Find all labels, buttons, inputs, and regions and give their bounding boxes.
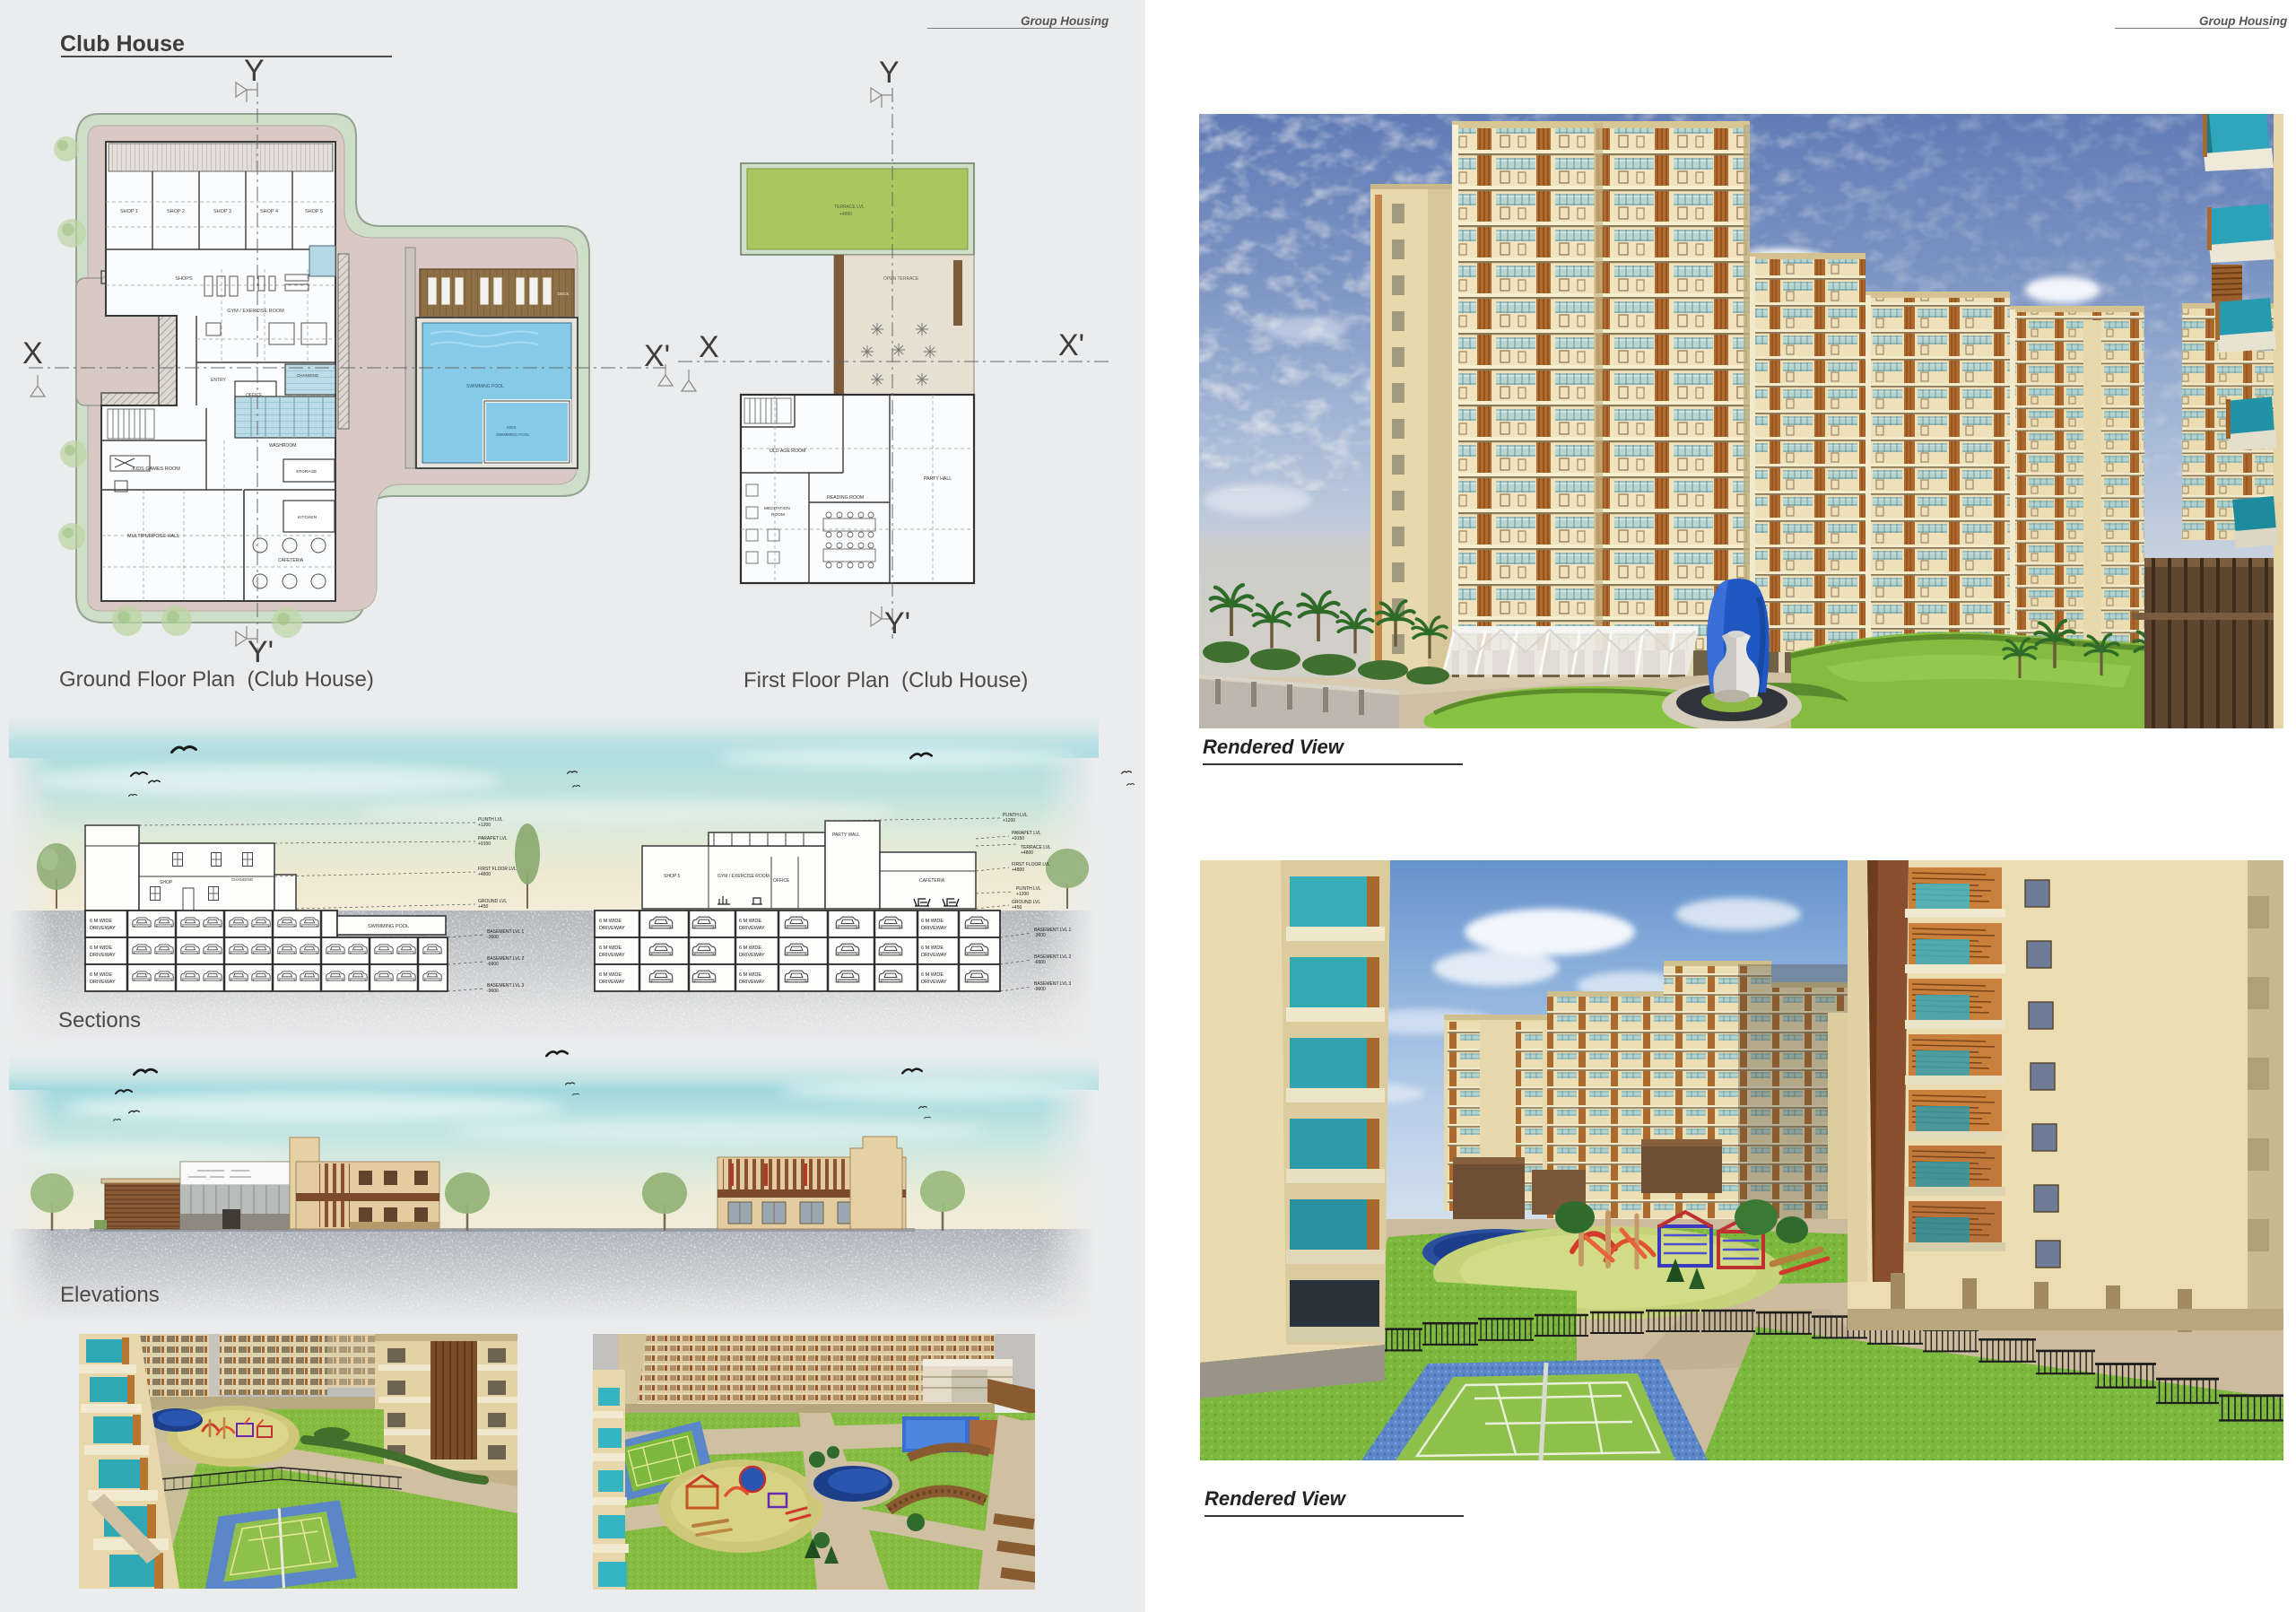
svg-text:PARTY WALL: PARTY WALL [832, 832, 860, 838]
svg-text:+4800: +4800 [1012, 867, 1024, 873]
svg-text:SWIMMING POOL: SWIMMING POOL [466, 384, 504, 389]
svg-text:-6600: -6600 [487, 962, 499, 967]
svg-text:DRIVEWAY: DRIVEWAY [739, 953, 765, 958]
svg-text:6 M WIDE: 6 M WIDE [921, 919, 944, 924]
svg-text:6 M WIDE: 6 M WIDE [599, 945, 622, 951]
svg-text:+1200: +1200 [478, 823, 491, 828]
svg-text:DRIVEWAY: DRIVEWAY [921, 926, 947, 931]
svg-text:SHOP 1: SHOP 1 [120, 209, 138, 214]
svg-text:STORAGE: STORAGE [296, 469, 317, 475]
svg-text:-9600: -9600 [487, 989, 499, 994]
svg-text:SHOP 3: SHOP 3 [213, 209, 231, 214]
svg-text:+4800: +4800 [478, 872, 491, 877]
svg-text:KITCHEN: KITCHEN [298, 515, 317, 520]
svg-text:GYM / EXERCISE ROOM: GYM / EXERCISE ROOM [717, 874, 770, 879]
svg-text:MEDITATION: MEDITATION [764, 506, 790, 511]
svg-text:PARTY HALL: PARTY HALL [924, 476, 952, 482]
svg-text:SHOPS: SHOPS [175, 276, 193, 282]
svg-text:OFFICE: OFFICE [773, 878, 790, 884]
svg-text:DRIVEWAY: DRIVEWAY [739, 980, 765, 985]
svg-text:6 M WIDE: 6 M WIDE [921, 945, 944, 951]
svg-text:MULTIPURPOSE HALL: MULTIPURPOSE HALL [127, 534, 179, 539]
svg-text:6 M WIDE: 6 M WIDE [599, 919, 622, 924]
svg-text:-3600: -3600 [1034, 933, 1046, 938]
svg-text:+4800: +4800 [1021, 850, 1033, 856]
svg-text:SHOP 5: SHOP 5 [664, 874, 680, 879]
svg-text:X: X [22, 336, 43, 370]
svg-text:CAFETERIA: CAFETERIA [919, 878, 945, 884]
svg-text:KIDS GAMES ROOM: KIDS GAMES ROOM [133, 466, 180, 472]
svg-text:+1200: +1200 [1003, 818, 1015, 823]
svg-text:SHOP 4: SHOP 4 [260, 209, 278, 214]
svg-text:SHOP 2: SHOP 2 [167, 209, 185, 214]
svg-text:6 M WIDE: 6 M WIDE [739, 945, 761, 951]
svg-text:DRIVEWAY: DRIVEWAY [90, 980, 116, 985]
svg-text:ENTRY: ENTRY [211, 378, 227, 383]
svg-text:6 M WIDE: 6 M WIDE [90, 972, 112, 978]
svg-text:DRIVEWAY: DRIVEWAY [90, 953, 116, 958]
svg-text:Y': Y' [884, 606, 910, 640]
svg-text:DRIVEWAY: DRIVEWAY [921, 953, 947, 958]
svg-text:-9600: -9600 [1034, 987, 1046, 992]
svg-text:DRIVEWAY: DRIVEWAY [599, 926, 625, 931]
svg-text:6 M WIDE: 6 M WIDE [921, 972, 944, 978]
svg-text:DRIVEWAY: DRIVEWAY [599, 980, 625, 985]
svg-text:Y': Y' [248, 635, 274, 669]
svg-text:CAFETERIA: CAFETERIA [278, 558, 304, 563]
svg-text:+450: +450 [478, 904, 488, 910]
svg-text:+4800: +4800 [839, 212, 852, 217]
svg-text:6 M WIDE: 6 M WIDE [739, 919, 761, 924]
svg-text:6 M WIDE: 6 M WIDE [599, 972, 622, 978]
svg-text:+9150: +9150 [1012, 836, 1024, 841]
svg-text:-6600: -6600 [1034, 960, 1046, 965]
svg-text:TERRACE LVL: TERRACE LVL [834, 205, 865, 210]
svg-text:SWIMMING POOL: SWIMMING POOL [368, 924, 409, 929]
svg-text:CHANGING: CHANGING [231, 877, 254, 882]
svg-text:SHOP 5: SHOP 5 [305, 209, 323, 214]
svg-text:+9150: +9150 [478, 841, 491, 847]
svg-text:OPEN TERRACE: OPEN TERRACE [883, 276, 919, 282]
svg-text:WASHROOM: WASHROOM [269, 443, 296, 449]
svg-text:X: X [699, 330, 719, 364]
svg-text:Y: Y [879, 56, 900, 90]
svg-text:6 M WIDE: 6 M WIDE [90, 945, 112, 951]
svg-text:6 M WIDE: 6 M WIDE [90, 919, 112, 924]
svg-text:DRIVEWAY: DRIVEWAY [739, 926, 765, 931]
svg-text:+450: +450 [1012, 905, 1022, 911]
svg-text:SWIMMING POOL: SWIMMING POOL [496, 432, 530, 437]
svg-text:-3600: -3600 [487, 935, 499, 940]
svg-text:+1200: +1200 [1016, 892, 1029, 897]
svg-text:KIDS: KIDS [507, 425, 517, 430]
svg-text:DRIVEWAY: DRIVEWAY [599, 953, 625, 958]
svg-text:CHANGING: CHANGING [297, 373, 319, 378]
svg-text:OLD AGE ROOM: OLD AGE ROOM [770, 449, 805, 454]
svg-text:DRIVEWAY: DRIVEWAY [90, 926, 116, 931]
svg-text:DRIVEWAY: DRIVEWAY [921, 980, 947, 985]
svg-text:6 M WIDE: 6 M WIDE [739, 972, 761, 978]
svg-text:GYM / EXERCISE ROOM: GYM / EXERCISE ROOM [227, 309, 284, 314]
svg-text:READING ROOM: READING ROOM [827, 495, 864, 501]
svg-text:X': X' [1058, 328, 1084, 362]
svg-text:SHOP: SHOP [160, 880, 173, 885]
svg-text:DECK: DECK [558, 292, 570, 296]
svg-text:ROOM: ROOM [771, 512, 785, 518]
svg-text:Y: Y [244, 54, 265, 88]
